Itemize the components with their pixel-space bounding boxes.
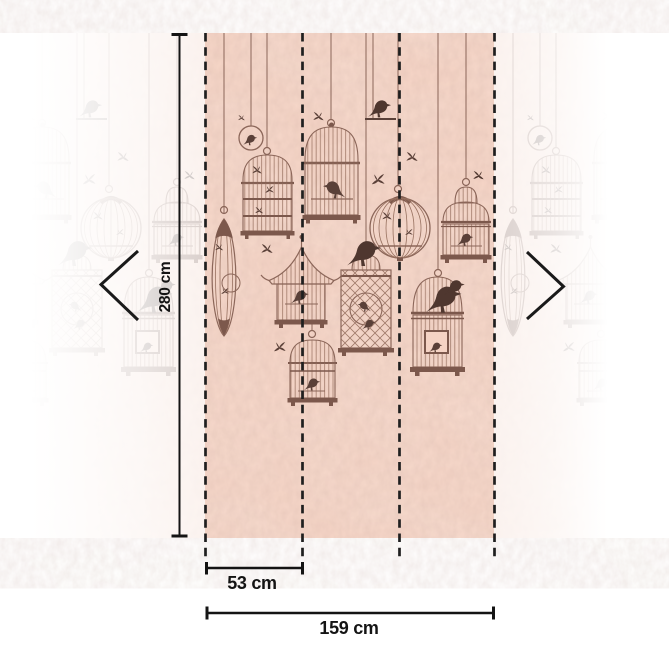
right-fade-overlay bbox=[494, 33, 669, 538]
height-label: 280 cm bbox=[157, 262, 174, 313]
panel-width-label: 53 cm bbox=[227, 573, 277, 593]
wallpaper-scene: 280 cm 53 cm 159 cm bbox=[0, 0, 669, 669]
wallpaper-product-preview: 280 cm 53 cm 159 cm bbox=[0, 0, 669, 669]
total-width-label: 159 cm bbox=[319, 618, 378, 638]
